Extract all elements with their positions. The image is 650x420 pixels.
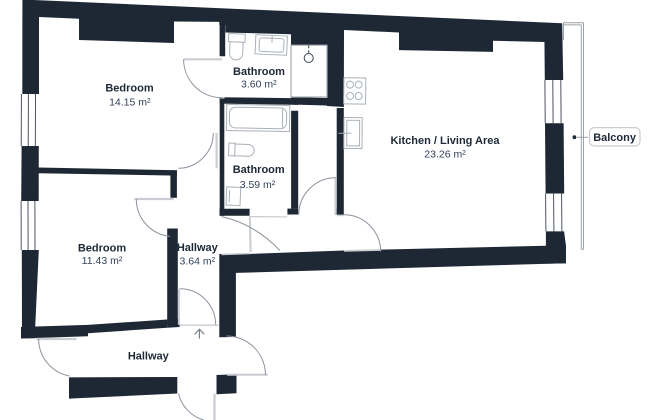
svg-text:11.43 m²: 11.43 m² xyxy=(82,255,123,267)
svg-text:3.64 m²: 3.64 m² xyxy=(179,256,215,268)
svg-text:Hallway: Hallway xyxy=(177,242,219,254)
svg-text:23.26 m²: 23.26 m² xyxy=(424,148,466,160)
svg-text:Hallway: Hallway xyxy=(128,351,170,363)
svg-text:3.60 m²: 3.60 m² xyxy=(241,79,277,91)
svg-text:Kitchen / Living Area: Kitchen / Living Area xyxy=(390,135,500,147)
svg-text:Balcony: Balcony xyxy=(593,132,637,144)
svg-text:Bathroom: Bathroom xyxy=(233,66,285,78)
svg-text:Bathroom: Bathroom xyxy=(233,164,285,176)
svg-text:Bedroom: Bedroom xyxy=(105,83,154,95)
svg-text:14.15 m²: 14.15 m² xyxy=(109,97,151,109)
svg-text:3.59 m²: 3.59 m² xyxy=(240,179,276,191)
svg-text:Bedroom: Bedroom xyxy=(78,243,127,255)
